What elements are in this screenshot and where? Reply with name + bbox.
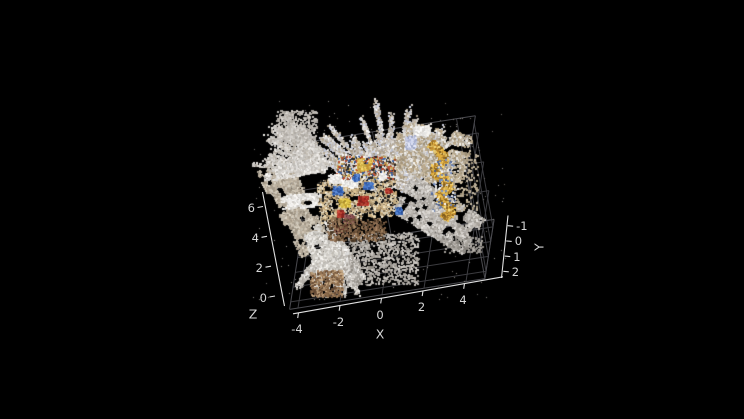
point-cloud-canvas[interactable]: [0, 0, 744, 419]
pointcloud-figure: X Y Z -4-20240246-1012: [0, 0, 744, 419]
